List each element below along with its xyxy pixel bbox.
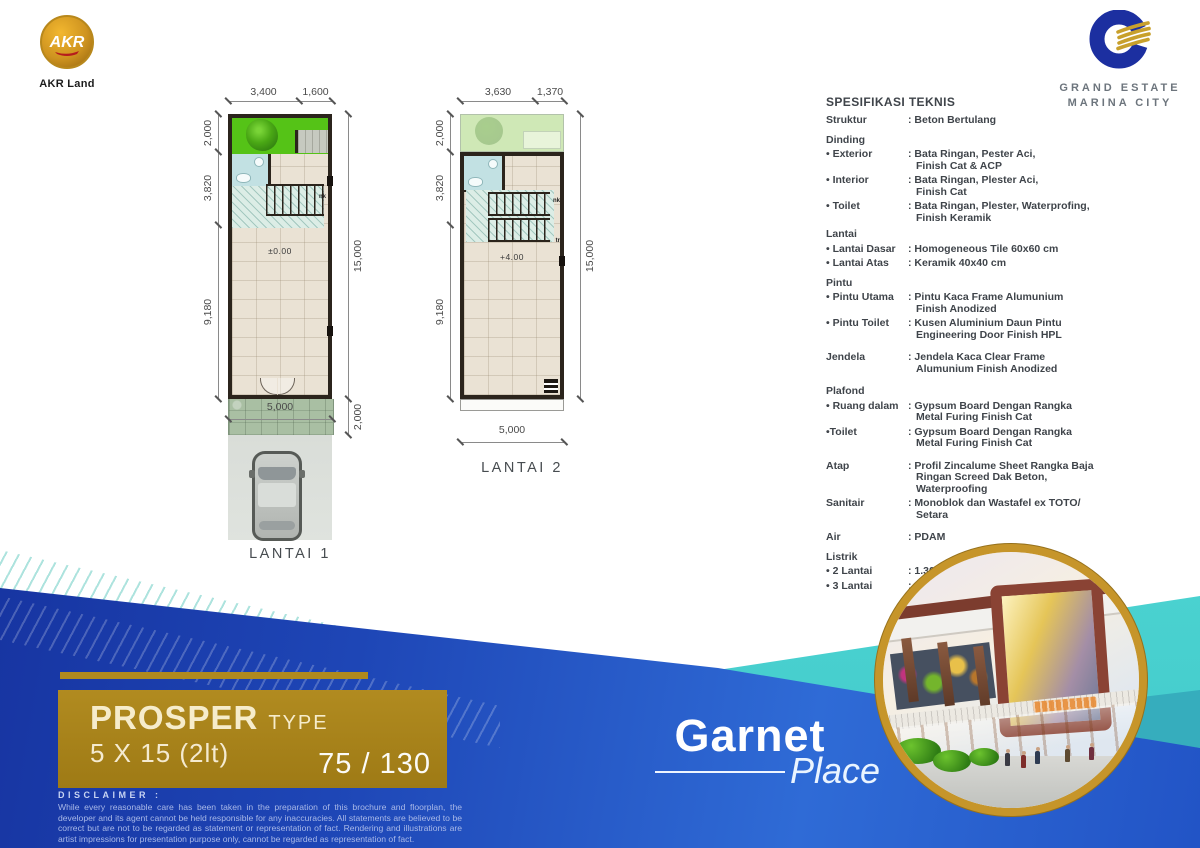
gemc-logo-icon bbox=[1088, 10, 1152, 72]
spec-title: SPESIFIKASI TEKNIS bbox=[826, 95, 1136, 109]
project-render-photo bbox=[875, 544, 1147, 816]
spec-label: • Pintu Utama bbox=[826, 292, 908, 315]
service-area bbox=[295, 130, 328, 153]
spec-value bbox=[908, 135, 1136, 147]
wc-icon bbox=[488, 159, 498, 169]
stair-note-down: tr bbox=[556, 238, 560, 244]
project-name-underline bbox=[655, 771, 785, 773]
dim-right: 15,000 bbox=[352, 234, 364, 278]
door-jamb bbox=[559, 256, 565, 266]
spec-row: • Exterior : Bata Ringan, Pester Aci, Fi… bbox=[826, 149, 1136, 172]
tree-icon bbox=[246, 119, 278, 151]
dim-line bbox=[218, 114, 219, 399]
spec-value: : Jendela Kaca Clear Frame Alumunium Fin… bbox=[908, 352, 1136, 375]
spec-row: • Pintu Utama : Pintu Kaca Frame Alumuni… bbox=[826, 292, 1136, 315]
roof-terrace bbox=[523, 131, 561, 149]
tree-shadow-icon bbox=[475, 117, 503, 145]
photo-person bbox=[1021, 755, 1026, 768]
level-label: ±0.00 bbox=[232, 246, 328, 256]
door-jamb bbox=[327, 176, 333, 186]
type-area: 75 / 130 bbox=[318, 748, 431, 781]
dim-line bbox=[228, 101, 332, 102]
plan2-label: LANTAI 2 bbox=[452, 460, 592, 476]
toilet-room bbox=[232, 154, 271, 188]
spec-row: Air : PDAM bbox=[826, 532, 1136, 544]
spec-row: • Toilet : Bata Ringan, Plester, Waterpr… bbox=[826, 201, 1136, 224]
spec-value: : Beton Bertulang bbox=[908, 115, 1136, 127]
photo-person bbox=[1005, 753, 1010, 766]
stair-note-up: nk bbox=[319, 194, 326, 200]
car-top-view bbox=[252, 451, 302, 541]
spec-label: Dinding bbox=[826, 135, 908, 147]
roof-garden bbox=[460, 114, 564, 152]
door-jamb bbox=[327, 326, 333, 336]
spec-value: : Bata Ringan, Pester Aci, Finish Cat & … bbox=[908, 149, 1136, 172]
photo-bush bbox=[933, 750, 971, 772]
spec-value: : Pintu Kaca Frame Alumunium Finish Anod… bbox=[908, 292, 1136, 315]
stair-treads-up bbox=[488, 192, 550, 216]
spec-row: Pintu bbox=[826, 278, 1136, 290]
dim-right-bottom: 2,000 bbox=[352, 395, 364, 439]
spec-row: Sanitair : Monoblok dan Wastafel ex TOTO… bbox=[826, 498, 1136, 521]
spec-label: • Pintu Toilet bbox=[826, 318, 908, 341]
spec-label: Struktur bbox=[826, 115, 908, 127]
spec-label: • Toilet bbox=[826, 201, 908, 224]
spec-label: • Lantai Dasar bbox=[826, 244, 908, 256]
spec-value: : Monoblok dan Wastafel ex TOTO/ Setara bbox=[908, 498, 1136, 521]
spec-label: Pintu bbox=[826, 278, 908, 290]
photo-person bbox=[1089, 747, 1094, 760]
gemc-name-line1: GRAND ESTATE bbox=[1046, 81, 1194, 96]
dim-line bbox=[450, 114, 451, 399]
spec-label: • Interior bbox=[826, 175, 908, 198]
dim-left-1: 2,000 bbox=[202, 111, 214, 155]
dim-line bbox=[460, 101, 564, 102]
project-subname: Place bbox=[790, 750, 880, 792]
spec-row: Atap : Profil Zincalume Sheet Rangka Baj… bbox=[826, 461, 1136, 496]
brochure-page: AKR AKR Land GRAND ESTATE MARINA CITY 3,… bbox=[0, 0, 1200, 848]
dim-left-1: 2,000 bbox=[434, 111, 446, 155]
dim-left-2: 3,820 bbox=[434, 166, 446, 210]
disclaimer-title: DISCLAIMER : bbox=[58, 790, 462, 800]
sink-icon bbox=[468, 177, 483, 187]
shaft-box bbox=[544, 379, 558, 393]
photo-person bbox=[1065, 749, 1070, 762]
spec-row: • Pintu Toilet : Kusen Aluminium Daun Pi… bbox=[826, 318, 1136, 341]
spec-value: : Homogeneous Tile 60x60 cm bbox=[908, 244, 1136, 256]
dim-top-right: 1,600 bbox=[299, 86, 332, 98]
spec-label: • Lantai Atas bbox=[826, 258, 908, 270]
spec-list: Struktur : Beton Bertulang Dinding • Ext… bbox=[826, 115, 1136, 592]
akr-land-logo: AKR AKR Land bbox=[22, 14, 112, 90]
spec-row: Jendela : Jendela Kaca Clear Frame Alumu… bbox=[826, 352, 1136, 375]
spec-value: : Gypsum Board Dengan Rangka Metal Furin… bbox=[908, 427, 1136, 450]
spec-row: • Ruang dalam : Gypsum Board Dengan Rang… bbox=[826, 401, 1136, 424]
entry-door-arc bbox=[278, 378, 295, 395]
type-word: TYPE bbox=[268, 712, 328, 734]
spec-label: •Toilet bbox=[826, 427, 908, 450]
stair-treads-down bbox=[488, 218, 550, 242]
unit-type-box: PROSPERTYPE 5 X 15 (2lt) 75 / 130 bbox=[58, 690, 447, 788]
spec-label: Plafond bbox=[826, 386, 908, 398]
spec-row: Lantai bbox=[826, 229, 1136, 241]
stair-treads bbox=[266, 184, 324, 216]
spec-row: • Interior : Bata Ringan, Plester Aci, F… bbox=[826, 175, 1136, 198]
dim-top-right: 1,370 bbox=[536, 86, 564, 98]
dim-line bbox=[228, 419, 332, 420]
spec-section: SPESIFIKASI TEKNIS Struktur : Beton Bert… bbox=[826, 95, 1136, 592]
spec-row: Struktur : Beton Bertulang bbox=[826, 115, 1136, 127]
canopy-ledge bbox=[460, 399, 564, 411]
dim-line bbox=[460, 442, 564, 443]
spec-value: : Kusen Aluminium Daun Pintu Engineering… bbox=[908, 318, 1136, 341]
spec-value: : PDAM bbox=[908, 532, 1136, 544]
dim-top-left: 3,630 bbox=[460, 86, 536, 98]
dim-bottom: 5,000 bbox=[460, 424, 564, 436]
spec-value bbox=[908, 229, 1136, 241]
spec-row: • Lantai Dasar : Homogeneous Tile 60x60 … bbox=[826, 244, 1136, 256]
floorplan-lantai-1: 3,400 1,600 2,000 3,820 9,180 15,000 2,0… bbox=[198, 84, 408, 604]
gold-accent-bar bbox=[60, 672, 368, 679]
spec-value bbox=[908, 278, 1136, 290]
akr-logo-text: AKR bbox=[49, 34, 85, 51]
dim-left-3: 9,180 bbox=[434, 290, 446, 334]
disclaimer: DISCLAIMER : While every reasonable care… bbox=[58, 790, 462, 844]
stair-note-up: nk bbox=[553, 198, 560, 204]
plan1-body: nk ±0.00 bbox=[228, 114, 332, 399]
type-name: PROSPER bbox=[90, 699, 258, 736]
wc-icon bbox=[254, 157, 264, 167]
disclaimer-body: While every reasonable care has been tak… bbox=[58, 802, 462, 844]
spec-label: • Ruang dalam bbox=[826, 401, 908, 424]
spec-value: : Profil Zincalume Sheet Rangka Baja Rin… bbox=[908, 461, 1136, 496]
spec-value: : Bata Ringan, Plester, Waterprofing, Fi… bbox=[908, 201, 1136, 224]
sink-icon bbox=[236, 173, 251, 183]
plan2-body: nk tr +4.00 bbox=[460, 152, 564, 399]
spec-value: : Keramik 40x40 cm bbox=[908, 258, 1136, 270]
photo-person bbox=[1035, 751, 1040, 764]
spec-label: • Exterior bbox=[826, 149, 908, 172]
akr-logo-icon: AKR bbox=[39, 14, 95, 70]
floorplan-lantai-2: 3,630 1,370 2,000 3,820 9,180 15,000 nk … bbox=[420, 84, 630, 524]
spec-row: Plafond bbox=[826, 386, 1136, 398]
project-name-block: Garnet Place bbox=[640, 710, 900, 762]
plan1-label: LANTAI 1 bbox=[220, 546, 360, 562]
dim-left-2: 3,820 bbox=[202, 166, 214, 210]
spec-row: •Toilet : Gypsum Board Dengan Rangka Met… bbox=[826, 427, 1136, 450]
type-size: 5 X 15 (2lt) bbox=[90, 738, 229, 769]
photo-bush bbox=[969, 748, 999, 766]
spec-value: : Gypsum Board Dengan Rangka Metal Furin… bbox=[908, 401, 1136, 424]
level-label: +4.00 bbox=[464, 252, 560, 262]
type-title-line: PROSPERTYPE bbox=[90, 699, 329, 737]
spec-row: • Lantai Atas : Keramik 40x40 cm bbox=[826, 258, 1136, 270]
toilet-room bbox=[464, 156, 505, 192]
spec-value: : Bata Ringan, Plester Aci, Finish Cat bbox=[908, 175, 1136, 198]
entry-door-arc bbox=[260, 378, 277, 395]
dim-line bbox=[348, 114, 349, 435]
spec-value bbox=[908, 386, 1136, 398]
spec-label: Atap bbox=[826, 461, 908, 496]
spec-row: Dinding bbox=[826, 135, 1136, 147]
dim-right: 15,000 bbox=[584, 234, 596, 278]
dim-top-left: 3,400 bbox=[228, 86, 299, 98]
spec-label: Jendela bbox=[826, 352, 908, 375]
spec-label: Lantai bbox=[826, 229, 908, 241]
dim-line bbox=[580, 114, 581, 399]
spec-label: Sanitair bbox=[826, 498, 908, 521]
spec-label: Air bbox=[826, 532, 908, 544]
dim-bottom: 5,000 bbox=[228, 401, 332, 413]
dim-left-3: 9,180 bbox=[202, 290, 214, 334]
akr-land-label: AKR Land bbox=[22, 78, 112, 90]
